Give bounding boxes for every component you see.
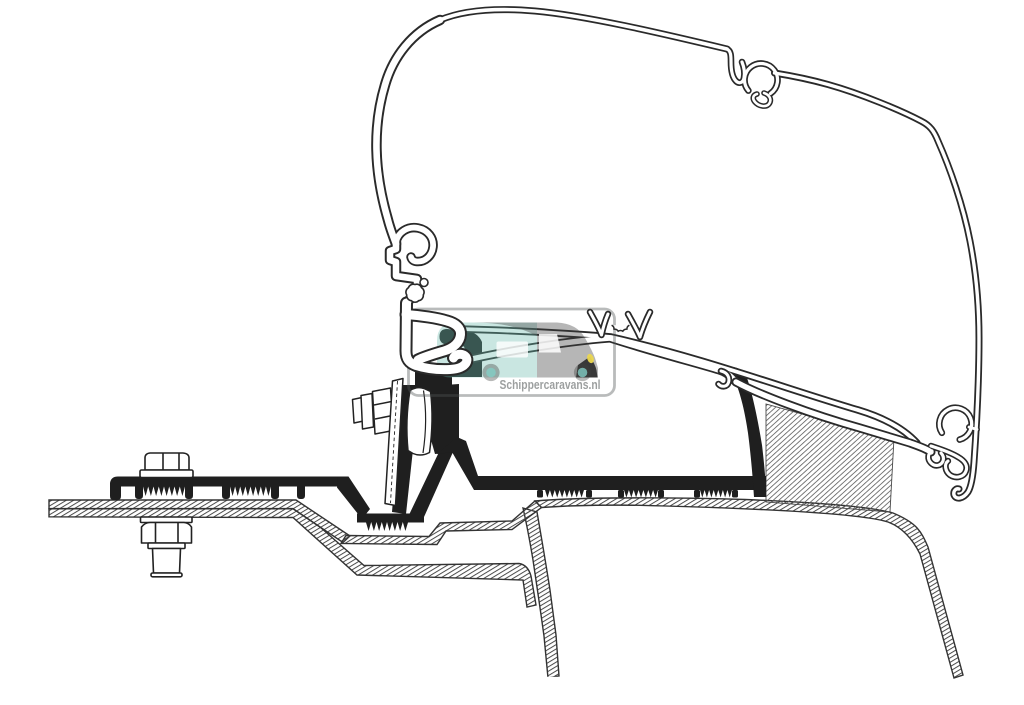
svg-text:Schippercaravans.nl: Schippercaravans.nl bbox=[500, 377, 601, 392]
